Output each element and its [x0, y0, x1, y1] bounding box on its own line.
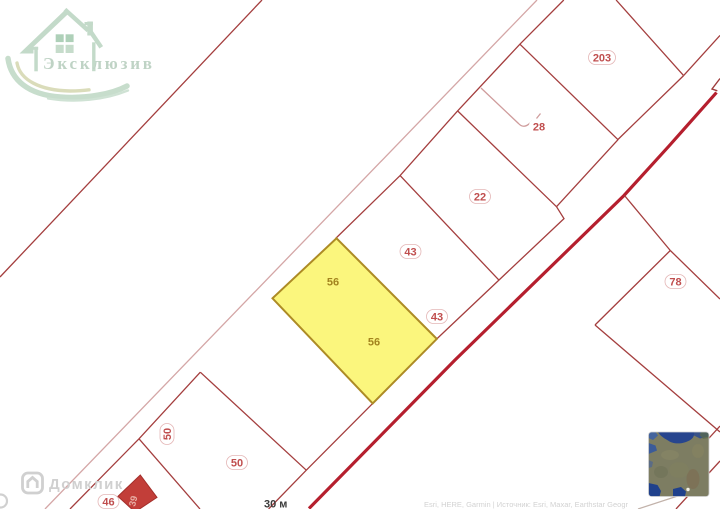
svg-text:30 м: 30 м — [264, 499, 287, 510]
svg-text:46: 46 — [102, 497, 114, 509]
svg-text:78: 78 — [669, 277, 681, 289]
svg-text:28: 28 — [533, 122, 545, 134]
svg-text:43: 43 — [431, 312, 443, 324]
svg-text:Домклик: Домклик — [49, 476, 124, 493]
svg-text:43: 43 — [404, 247, 416, 259]
svg-text:56: 56 — [327, 277, 339, 289]
svg-text:56: 56 — [368, 337, 380, 349]
svg-text:50: 50 — [231, 458, 243, 470]
svg-text:Esri, HERE, Garmin | Источник:: Esri, HERE, Garmin | Источник: Esri, Max… — [424, 500, 629, 509]
svg-text:203: 203 — [593, 53, 611, 65]
svg-text:22: 22 — [474, 192, 486, 204]
svg-text:Эксклюзив: Эксклюзив — [43, 54, 155, 73]
svg-text:50: 50 — [162, 428, 174, 440]
